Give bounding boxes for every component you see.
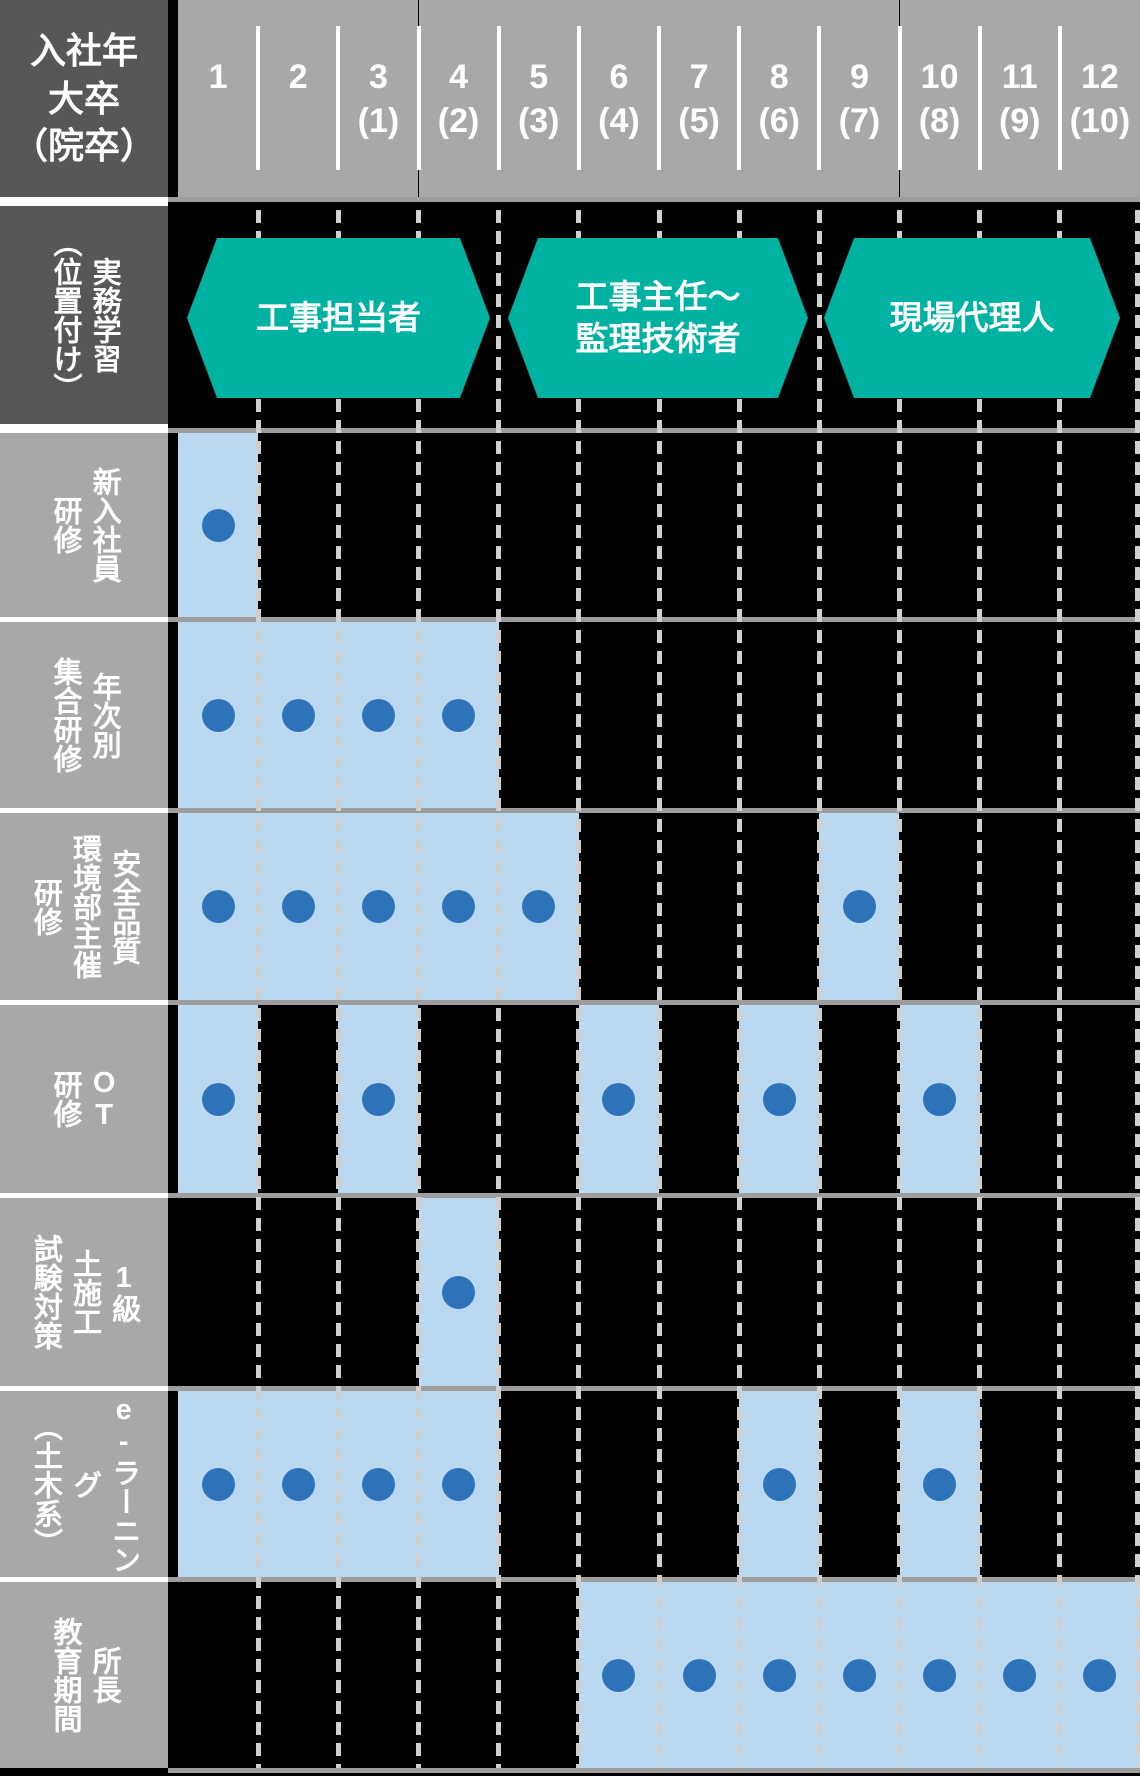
schedule-dot [202, 1083, 235, 1116]
year-column-header: 8(6) [739, 0, 819, 197]
row-label-line: 環境部主催 [64, 834, 103, 979]
schedule-dot [923, 1659, 956, 1692]
corner-label-line: 入社年 [30, 27, 138, 75]
row-label-text: 安全品質環境部主催研修 [25, 834, 142, 979]
year-column-header: 5(3) [499, 0, 579, 197]
schedule-dot [202, 699, 235, 732]
schedule-dot [843, 890, 876, 923]
row-label-line: OT [84, 1067, 123, 1131]
row-label-line: （土木系） [25, 1391, 64, 1577]
year-number-label: 10 [921, 55, 959, 99]
row-divider-line [168, 1768, 1140, 1773]
corner-label-line: （院卒） [12, 122, 156, 170]
header-column-separator [336, 26, 340, 170]
header-column-separator [978, 26, 982, 170]
header-column-separator [898, 26, 902, 170]
column-divider-dashed [336, 210, 341, 1768]
grad-year-label: (3) [518, 99, 560, 143]
row-label-line: 土施工 [64, 1234, 103, 1350]
position-arrow-label: 工事主任〜監理技術者 [576, 276, 741, 360]
header-column-separator [657, 26, 661, 170]
year-number-label: 7 [690, 55, 709, 99]
position-arrow: 工事主任〜監理技術者 [508, 238, 808, 398]
column-divider-dashed [416, 210, 421, 1768]
row-label-line: 研修 [45, 1067, 84, 1131]
schedule-dot [1083, 1659, 1116, 1692]
year-number-label: 6 [609, 55, 628, 99]
schedule-dot [442, 890, 475, 923]
header-column-separator [417, 26, 421, 170]
row-label-training: 新入社員研修 [0, 433, 168, 617]
row-label-training: 年次別集合研修 [0, 622, 168, 808]
column-divider-dashed [737, 210, 742, 1768]
column-divider-dashed [817, 210, 822, 1768]
row-label-text: 新入社員研修 [45, 467, 123, 583]
row-label-line: 研修 [45, 467, 84, 583]
row-label-line: 集合研修 [45, 657, 84, 773]
column-divider-dashed [977, 210, 982, 1768]
column-divider-dashed [657, 210, 662, 1768]
column-divider-dashed [256, 210, 261, 1768]
column-divider-dashed [576, 210, 581, 1768]
row-label-line: 研修 [25, 834, 64, 979]
schedule-dot [442, 1468, 475, 1501]
row-divider-line [168, 1193, 1140, 1198]
year-column-header: 2 [258, 0, 338, 197]
row-label-training: 所長教育期間 [0, 1582, 168, 1768]
row-label-training: 安全品質環境部主催研修 [0, 813, 168, 1000]
schedule-dot [602, 1659, 635, 1692]
header-column-separator [1058, 26, 1062, 170]
grad-year-label: (7) [839, 99, 881, 143]
row-label-text: 実務学習（位置付け） [45, 228, 123, 402]
schedule-dot [763, 1468, 796, 1501]
schedule-dot [923, 1083, 956, 1116]
row-label-position: 実務学習（位置付け） [0, 206, 168, 424]
position-arrow-label: 現場代理人 [890, 297, 1055, 339]
row-label-text: OT研修 [45, 1067, 123, 1131]
year-column-header: 7(5) [659, 0, 739, 197]
row-divider-line [168, 1577, 1140, 1582]
arrow-label-line: 工事担当者 [256, 297, 421, 339]
year-number-label: 11 [1002, 55, 1038, 99]
row-label-text: 所長教育期間 [45, 1617, 123, 1733]
row-label-line: 所長 [84, 1617, 123, 1733]
row-divider-line [168, 617, 1140, 622]
header-column-separator [497, 26, 501, 170]
row-label-line: 教育期間 [45, 1617, 84, 1733]
grad-year-label: (2) [438, 99, 480, 143]
schedule-dot [442, 1276, 475, 1309]
row-label-line: 安全品質 [104, 834, 143, 979]
position-arrow: 工事担当者 [187, 238, 490, 398]
schedule-dot [362, 890, 395, 923]
schedule-dot [763, 1083, 796, 1116]
arrow-label-line: 現場代理人 [890, 297, 1055, 339]
year-column-header: 9(7) [819, 0, 899, 197]
row-divider-line [168, 1000, 1140, 1005]
corner-label-line: 大卒 [48, 75, 120, 123]
grad-year-label: (9) [999, 99, 1041, 143]
row-label-line: （位置付け） [45, 228, 84, 402]
year-column-header: 12(10) [1060, 0, 1140, 197]
year-number-label: 2 [289, 55, 308, 99]
row-label-text: e-ラーニング（土木系） [25, 1391, 142, 1577]
grad-year-label: (4) [598, 99, 640, 143]
grad-year-label [293, 99, 303, 143]
grad-year-label [213, 99, 223, 143]
schedule-dot [202, 890, 235, 923]
row-divider-line [168, 808, 1140, 813]
schedule-dot [362, 1468, 395, 1501]
year-number-label: 8 [770, 55, 789, 99]
row-label-line: 実務学習 [84, 228, 123, 402]
arrow-label-line: 工事主任〜 [576, 276, 741, 318]
year-number-label: 3 [369, 55, 388, 99]
schedule-dot [362, 699, 395, 732]
position-arrow-label: 工事担当者 [256, 297, 421, 339]
year-column-header: 1 [178, 0, 258, 197]
year-number-label: 5 [529, 55, 548, 99]
year-column-header: 6(4) [579, 0, 659, 197]
schedule-dot [202, 509, 235, 542]
schedule-dot [442, 699, 475, 732]
column-divider-dashed [1135, 210, 1140, 1768]
year-number-label: 9 [850, 55, 869, 99]
training-curriculum-chart: 入社年 大卒 （院卒） 123(1)4(2)5(3)6(4)7(5)8(6)9(… [0, 0, 1140, 1776]
header-column-separator [737, 26, 741, 170]
row-label-text: 1級土施工試験対策 [25, 1234, 142, 1350]
schedule-dot [282, 890, 315, 923]
row-label-training: 1級土施工試験対策 [0, 1198, 168, 1386]
year-column-header: 11(9) [980, 0, 1060, 197]
row-label-line: 1級 [104, 1234, 143, 1350]
schedule-dot [843, 1659, 876, 1692]
schedule-dot [282, 699, 315, 732]
column-divider-dashed [496, 210, 501, 1768]
arrow-label-line: 監理技術者 [576, 318, 741, 360]
row-label-line: e-ラーニング [64, 1391, 142, 1577]
schedule-dot [683, 1659, 716, 1692]
row-label-text: 年次別集合研修 [45, 657, 123, 773]
header-column-separator [577, 26, 581, 170]
column-divider-dashed [897, 210, 902, 1768]
row-divider-line [168, 1386, 1140, 1391]
grad-year-label: (6) [758, 99, 800, 143]
header-column-separator [256, 26, 260, 170]
grad-year-label: (1) [358, 99, 400, 143]
schedule-dot [602, 1083, 635, 1116]
year-column-header: 10(8) [900, 0, 980, 197]
position-arrow: 現場代理人 [824, 238, 1120, 398]
schedule-dot [763, 1659, 796, 1692]
grad-year-label: (5) [678, 99, 720, 143]
year-column-header: 3(1) [338, 0, 418, 197]
column-divider-dashed [1057, 210, 1062, 1768]
header-column-separator [817, 26, 821, 170]
year-number-label: 1 [209, 55, 228, 99]
row-label-training: e-ラーニング（土木系） [0, 1391, 168, 1577]
grad-year-label: (8) [919, 99, 961, 143]
row-label-line: 年次別 [84, 657, 123, 773]
corner-header-cell: 入社年 大卒 （院卒） [0, 0, 168, 197]
year-number-label: 12 [1081, 55, 1119, 99]
row-label-line: 新入社員 [84, 467, 123, 583]
year-number-label: 4 [449, 55, 468, 99]
schedule-dot [202, 1468, 235, 1501]
schedule-dot [1003, 1659, 1036, 1692]
row-label-line: 試験対策 [25, 1234, 64, 1350]
grad-year-label: (10) [1070, 99, 1130, 143]
schedule-dot [923, 1468, 956, 1501]
row-label-training: OT研修 [0, 1005, 168, 1193]
schedule-dot [362, 1083, 395, 1116]
row-divider-line [168, 428, 1140, 433]
schedule-dot [282, 1468, 315, 1501]
year-column-header: 4(2) [419, 0, 499, 197]
row-divider-line [168, 197, 1140, 202]
